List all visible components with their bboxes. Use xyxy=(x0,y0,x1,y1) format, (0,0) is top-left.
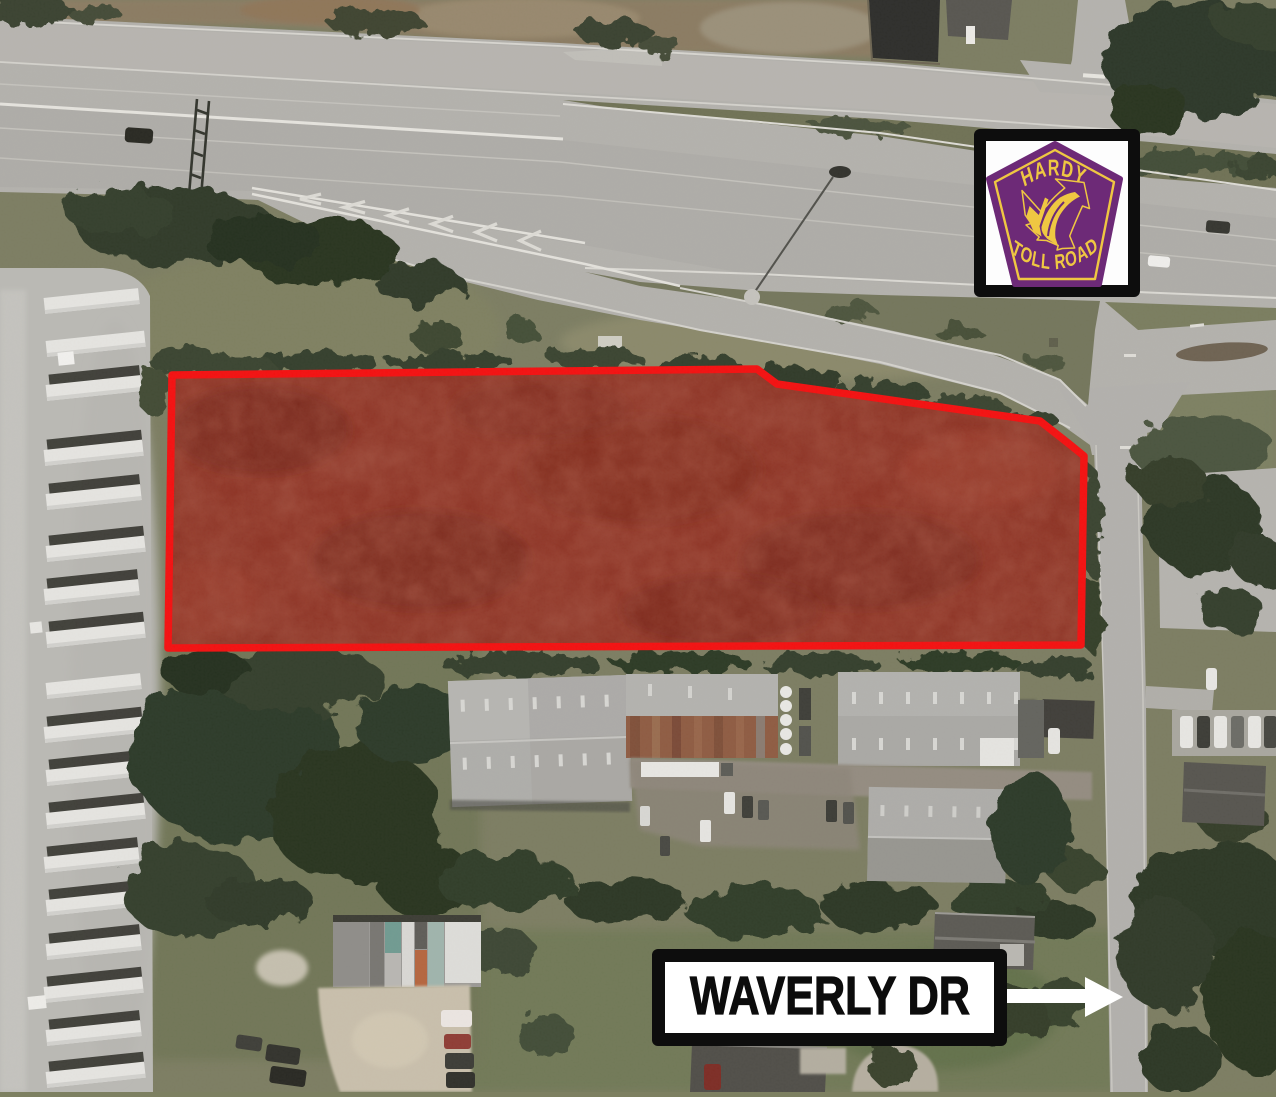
svg-text:WAVERLY DR: WAVERLY DR xyxy=(690,967,970,1027)
